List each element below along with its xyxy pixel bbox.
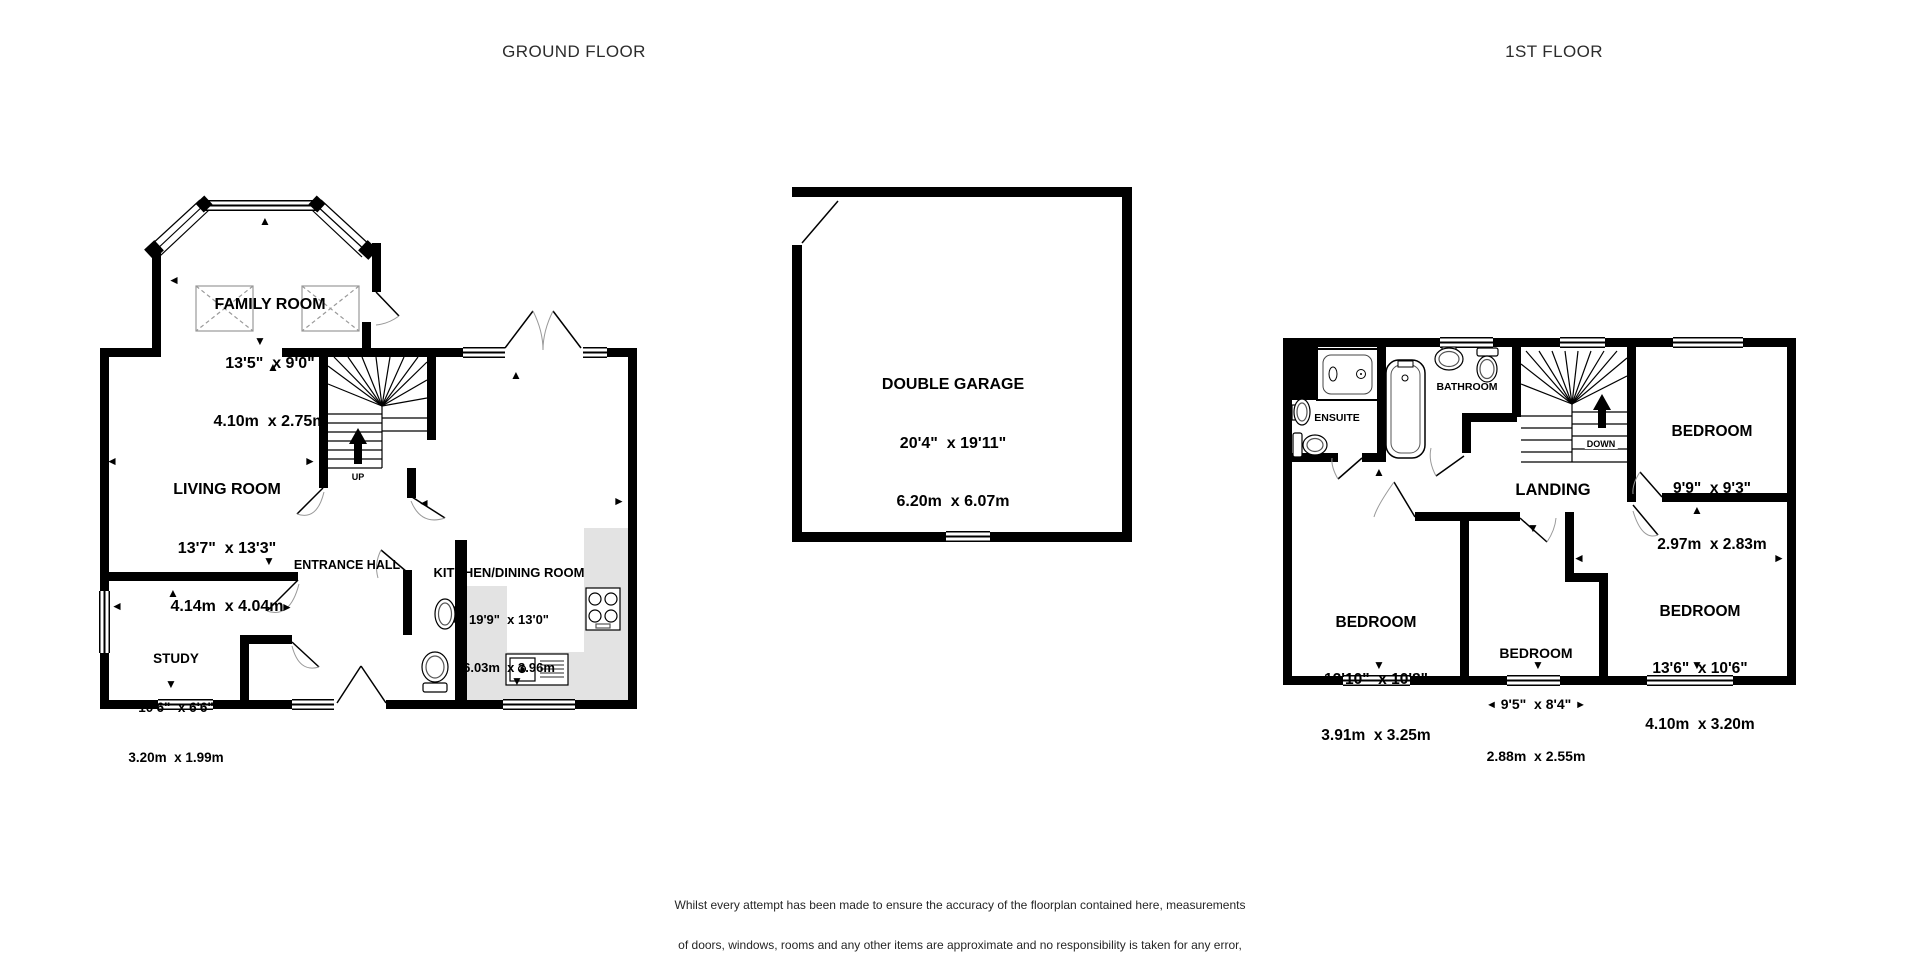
- shower: [1317, 349, 1378, 400]
- wall: [1460, 512, 1469, 685]
- wall: [100, 348, 109, 709]
- room-dims-metric: 3.20m x 1.99m: [128, 750, 223, 766]
- wall: [152, 247, 161, 357]
- measure-arrow-down-icon: ▼: [165, 678, 177, 690]
- measure-arrow-left-icon: ◄: [418, 497, 430, 509]
- wall: [628, 348, 637, 709]
- wall: [1627, 347, 1636, 502]
- measure-arrow-down-icon: ▼: [1691, 659, 1703, 671]
- arrow-right-icon: ►: [1575, 699, 1586, 711]
- measure-arrow-left-icon: ◄: [111, 600, 123, 612]
- wall: [1462, 413, 1471, 453]
- measure-arrow-down-icon: ▼: [263, 555, 275, 567]
- ground-floor-title: GROUND FLOOR: [502, 42, 646, 62]
- door-leaves-first: [1338, 456, 1662, 542]
- measure-arrow-up-icon: ▲: [1691, 504, 1703, 516]
- measure-arrow-right-icon: ►: [613, 495, 625, 507]
- wall: [1565, 512, 1574, 582]
- room-name: FAMILY ROOM: [214, 295, 327, 315]
- room-name: BEDROOM: [1309, 614, 1443, 633]
- ensuite-sink: [1292, 399, 1310, 425]
- wall: [427, 357, 436, 440]
- garage-door-opening: [792, 197, 802, 245]
- measure-arrow-down-icon: ▼: [1527, 522, 1539, 534]
- window: [463, 347, 505, 358]
- window: [583, 347, 607, 358]
- room-dims-metric: 6.20m x 6.07m: [882, 492, 1024, 512]
- wall: [1512, 347, 1521, 417]
- room-dims-metric: 4.10m x 2.75m: [214, 412, 327, 432]
- measure-arrow-up-icon: ▲: [167, 587, 179, 599]
- measure-arrow-up-icon: ▲: [1373, 466, 1385, 478]
- room-label-bedroom-2: BEDROOM ◄ 9'5" x 8'4" ► 2.88m x 2.55m: [1486, 611, 1586, 799]
- measure-arrow-down-icon: ▼: [511, 675, 523, 687]
- room-dims-metric: 6.03m x 3.96m: [434, 660, 585, 676]
- room-dims-metric: 2.88m x 2.55m: [1486, 748, 1586, 765]
- measure-arrow-left-icon: ◄: [106, 455, 118, 467]
- arrow-left-icon: ◄: [1486, 699, 1497, 711]
- window: [292, 699, 334, 710]
- measure-arrow-up-icon: ▲: [267, 361, 279, 373]
- room-label-entrance-hall: ENTRANCE HALL: [294, 558, 400, 572]
- room-name: KITCHEN/DINING ROOM: [434, 565, 585, 581]
- room-label-ensuite: ENSUITE: [1314, 412, 1360, 424]
- wall: [362, 322, 371, 348]
- stairs-up-label: UP: [350, 473, 367, 482]
- measure-arrow-right-icon: ►: [1773, 552, 1785, 564]
- room-dims-metric: 4.10m x 3.20m: [1645, 716, 1754, 735]
- bathtub: [1386, 360, 1425, 458]
- wall: [1377, 347, 1386, 462]
- room-label-bedroom-4: BEDROOM 9'9" x 9'3" 2.97m x 2.83m: [1657, 385, 1766, 593]
- wall: [1362, 453, 1377, 462]
- down-arrow-icon: [1593, 394, 1611, 428]
- room-dims-metric: 4.14m x 4.04m: [171, 597, 284, 617]
- room-name: BEDROOM: [1645, 603, 1754, 622]
- measure-arrow-down-icon: ▼: [1532, 659, 1544, 671]
- room-dims-imperial: 10'6" x 6'6": [128, 700, 223, 716]
- room-name: LIVING ROOM: [171, 480, 284, 500]
- measure-arrow-up-icon: ▲: [259, 215, 271, 227]
- staircase-ground: [328, 357, 427, 468]
- window: [1560, 337, 1605, 348]
- room-label-landing: LANDING: [1515, 481, 1590, 500]
- measure-arrow-right-icon: ►: [304, 455, 316, 467]
- room-dims-imperial: 19'9" x 13'0": [434, 612, 585, 628]
- wall: [1599, 573, 1608, 685]
- room-name: DOUBLE GARAGE: [882, 375, 1024, 395]
- room-dims-imperial: ◄ 12'10" x 10'8" ►: [1309, 671, 1443, 690]
- bathroom-toilet: [1477, 348, 1498, 382]
- window: [1673, 337, 1743, 348]
- up-arrow-icon: [349, 428, 367, 464]
- kitchen-counter-right: [584, 528, 628, 700]
- arrow-left-icon: ◄: [1309, 674, 1320, 686]
- wall: [1122, 187, 1132, 542]
- wall: [1283, 338, 1292, 685]
- arrow-right-icon: ►: [1432, 674, 1443, 686]
- disclaimer-line: Whilst every attempt has been made to en…: [671, 899, 1248, 912]
- room-dims-imperial: 20'4" x 19'11": [882, 434, 1024, 454]
- bathroom-sink: [1435, 347, 1463, 370]
- wall: [792, 187, 1132, 197]
- room-label-bedroom-1: BEDROOM ◄ 12'10" x 10'8" ► 3.91m x 3.25m: [1309, 576, 1443, 784]
- measure-arrow-left-icon: ◄: [168, 274, 180, 286]
- disclaimer-line: of doors, windows, rooms and any other i…: [671, 939, 1248, 952]
- measure-arrow-up-icon: ▲: [510, 369, 522, 381]
- stairs-down-label: DOWN: [1585, 440, 1618, 449]
- window: [1440, 337, 1493, 348]
- wall: [407, 468, 416, 498]
- room-name: BEDROOM: [1657, 423, 1766, 442]
- room-name: STUDY: [128, 651, 223, 667]
- wall: [1292, 453, 1338, 462]
- room-label-kitchen-dining: KITCHEN/DINING ROOM 19'9" x 13'0" 6.03m …: [434, 533, 585, 707]
- room-dims-metric: 3.91m x 3.25m: [1309, 727, 1443, 746]
- measure-arrow-down-icon: ▼: [254, 335, 266, 347]
- floorplan-page: GROUND FLOOR 1ST FLOOR: [0, 0, 1920, 966]
- wall: [403, 570, 412, 635]
- room-label-double-garage: DOUBLE GARAGE 20'4" x 19'11" 6.20m x 6.0…: [882, 336, 1024, 551]
- room-dims-imperial: ◄ 9'5" x 8'4" ►: [1486, 696, 1586, 713]
- window: [203, 200, 318, 211]
- measure-arrow-down-icon: ▼: [1373, 659, 1385, 671]
- first-floor-title: 1ST FLOOR: [1505, 42, 1603, 62]
- measure-arrow-left-icon: ◄: [1573, 552, 1585, 564]
- room-dims-imperial: 9'9" x 9'3": [1657, 480, 1766, 499]
- wall: [1787, 338, 1796, 685]
- room-dims-metric: 2.97m x 2.83m: [1657, 536, 1766, 555]
- measure-arrow-right-icon: ►: [371, 275, 383, 287]
- window: [99, 591, 110, 653]
- room-label-bathroom: BATHROOM: [1436, 381, 1497, 393]
- door-arcs-first: [1332, 448, 1658, 542]
- disclaimer: Whilst every attempt has been made to en…: [671, 872, 1248, 966]
- room-label-study: STUDY 10'6" x 6'6" 3.20m x 1.99m: [128, 618, 223, 799]
- measure-arrow-right-icon: ►: [281, 601, 293, 613]
- wall: [1292, 347, 1318, 400]
